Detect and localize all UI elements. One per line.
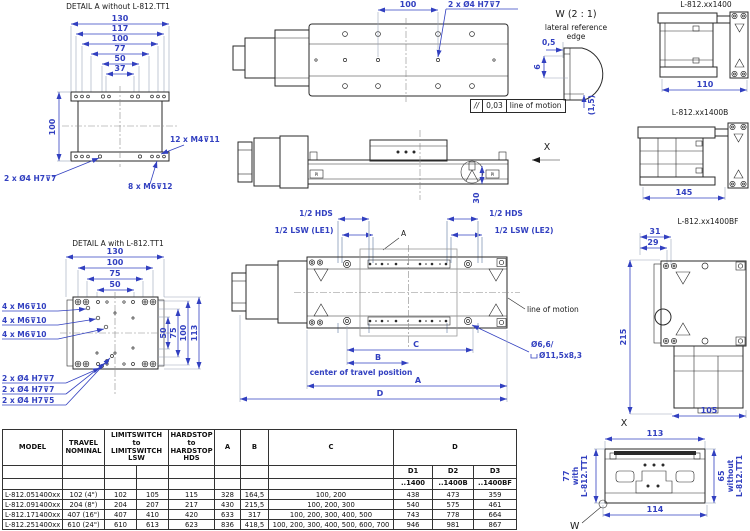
w-detail-title: W (2 : 1) (555, 9, 596, 20)
w-callout: W (570, 500, 607, 531)
cell-d2: 575 (433, 500, 474, 510)
note-2x-d4h7-top: 2 x Ø4 H7⊽7 (448, 0, 500, 9)
dim-130b: 130 (107, 247, 124, 256)
top-plan-view: 100 2 x Ø4 H7⊽7 (232, 0, 520, 98)
cell-hds: 115 (169, 490, 215, 500)
dim-215-label: 215 (619, 328, 628, 345)
table-header-row: MODEL TRAVEL NOMINAL LIMITSWITCH to LIMI… (3, 430, 517, 466)
x-left-dim-77: 77 with L-812.TT1 (562, 449, 605, 503)
bf-top-dims: 31 29 (640, 227, 671, 265)
parallelism-symbol: // (471, 100, 483, 112)
w-detail-sub2: edge (567, 32, 586, 41)
stage-side-body: PI PI (308, 130, 508, 200)
cell-travel: 610 (24") (63, 520, 105, 530)
hole-callout: 2 x Ø4 H7⊽7 (438, 0, 518, 57)
dim-75r: 75 (169, 327, 178, 339)
table-row: L-812.051400xx 102 (4") 102 105 115 328 … (3, 490, 517, 500)
table-subheader-row-2: ..1400 ..1400B ..1400BF (3, 479, 517, 490)
dim-65-note1: without (726, 459, 735, 492)
view-1400b-label: L-812.xx1400B (672, 108, 729, 117)
dim-height-100: 100 (48, 118, 57, 135)
table-subheader-row-1: D1 D2 D3 (3, 466, 517, 479)
dim-113-label: 113 (647, 429, 664, 438)
x-dim-114: 114 (603, 505, 707, 517)
cell-a: 328 (215, 490, 241, 500)
cell-hds: 217 (169, 500, 215, 510)
cell-d1: 743 (394, 510, 433, 520)
detail-a-with-tt1-view: DETAIL A with L-812.TT1 130 100 75 50 (0, 235, 232, 413)
a-callout-label: A (401, 229, 407, 238)
x-body (605, 449, 705, 503)
col-d1-header: D1 (394, 466, 433, 479)
w-detail-sub1: lateral reference (545, 23, 608, 32)
dim-100-label: 100 (400, 0, 417, 9)
w-detail-view: W (2 : 1) lateral reference edge 0,5 6 (… (518, 4, 630, 116)
cell-hds: 623 (169, 520, 215, 530)
motor-silhouette-b (638, 127, 728, 185)
mounting-plate-b (728, 123, 748, 188)
spec-table: MODEL TRAVEL NOMINAL LIMITSWITCH to LIMI… (2, 429, 517, 530)
datasheet-drawing-page: DETAIL A without L-812.TT1 130 117 100 7… (0, 0, 750, 531)
height-dimension: 100 (48, 92, 71, 161)
dim-6: 6 (533, 64, 542, 70)
col-lsw-header: LIMITSWITCH to LIMITSWITCH LSW (105, 430, 169, 466)
motor-side (238, 136, 308, 188)
dim-145-label: 145 (676, 188, 693, 197)
cell-lsw2: 207 (137, 500, 169, 510)
view-1400bf-label: L-812.xx1400BF (678, 217, 739, 226)
cell-d3: 664 (474, 510, 517, 520)
dim-a-label: A (415, 376, 422, 385)
col-b-header: B (241, 430, 269, 466)
cell-hds: 420 (169, 510, 215, 520)
view-1400: L-812.xx1400 110 (635, 0, 750, 98)
dim-50b: 50 (109, 280, 121, 289)
tolerance-value: 0,03 (483, 100, 507, 112)
dim-100r: 100 (179, 324, 188, 341)
dim-77-note2: L-812.TT1 (580, 455, 589, 497)
table-row: L-812.091400xx 204 (8") 204 207 217 430 … (3, 500, 517, 510)
dim-75b: 75 (109, 269, 121, 278)
dim-31-label: 31 (649, 227, 661, 236)
hole-note-line1: Ø6,6/ (531, 340, 554, 349)
dim-65-note2: L-812.TT1 (735, 455, 744, 497)
cell-travel: 204 (8") (63, 500, 105, 510)
detail-a-top-title: DETAIL A without L-812.TT1 (66, 2, 170, 11)
bf-upper-body (654, 261, 746, 346)
mounting-plate (730, 12, 748, 78)
note-m6-3: 4 x M6⊽10 (2, 330, 47, 339)
cell-model: L-812.251400xx (3, 520, 63, 530)
cell-b: 317 (241, 510, 269, 520)
col-travel-header: TRAVEL NOMINAL (63, 430, 105, 466)
bf-lower-motor (674, 346, 743, 413)
cell-a: 836 (215, 520, 241, 530)
tt1-body (60, 292, 172, 395)
dim-110-label: 110 (697, 80, 714, 89)
cell-a: 430 (215, 500, 241, 510)
lsw-right-label: 1/2 LSW (LE2) (495, 226, 554, 235)
hds-left-label: 1/2 HDS (299, 209, 333, 218)
cell-d1: 438 (394, 490, 433, 500)
hole-note-line2: Ø11,5x8,3 (539, 351, 582, 360)
dim-50r: 50 (159, 327, 168, 339)
side-elevation-view: PI PI 30 X (230, 122, 650, 208)
col-d3-header: D3 (474, 466, 517, 479)
dim-77-label: 77 (562, 470, 571, 481)
w-callout-label: W (570, 521, 580, 531)
stage-body (309, 18, 508, 102)
dim-145: 145 (643, 187, 725, 200)
cell-d2: 473 (433, 490, 474, 500)
cell-d2: 778 (433, 510, 474, 520)
note-12x-m4: 12 x M4⊽11 (170, 135, 220, 144)
view-1400bf: L-812.xx1400BF 31 29 215 105 (618, 215, 750, 420)
cell-d3: 461 (474, 500, 517, 510)
dim-0-5: 0,5 (542, 38, 555, 47)
main-motor (232, 261, 307, 323)
col-hds-header: HARDSTOP to HARDSTOP HDS (169, 430, 215, 466)
note-m6-2: 4 x M6⊽10 (2, 316, 47, 325)
dimension-chain: 130 117 100 77 50 37 (71, 14, 169, 92)
counterbore-callout: Ø6,6/ Ø11,5x8,3 (472, 325, 582, 360)
cell-lsw1: 407 (105, 510, 137, 520)
dim-65-label: 65 (717, 470, 726, 482)
bottom-annotations: 2 x Ø4 H7⊽7 2 x Ø4 H7⊽7 2 x Ø4 H7⊽5 (2, 358, 110, 405)
cell-d1: 540 (394, 500, 433, 510)
counterbore-detail: 30 (461, 161, 483, 204)
cell-lsw1: 102 (105, 490, 137, 500)
cell-travel: 407 (16") (63, 510, 105, 520)
edge-profile (564, 48, 603, 100)
cell-b: 215,5 (241, 500, 269, 510)
table-row: L-812.171400xx 407 (16") 407 410 420 633… (3, 510, 517, 520)
dim-77-note1: with (571, 467, 580, 485)
body-outline (62, 86, 178, 167)
dim-d-label: D (377, 389, 384, 398)
cell-b: 418,5 (241, 520, 269, 530)
view-1400-label: L-812.xx1400 (680, 0, 732, 9)
cell-model: L-812.051400xx (3, 490, 63, 500)
cell-lsw2: 410 (137, 510, 169, 520)
dim-c-label: C (413, 340, 419, 349)
dim-b-label: B (375, 353, 381, 362)
dim-37: 37 (114, 64, 125, 73)
dim-100-between-holes: 100 (378, 0, 438, 57)
x-axis-label: X (544, 142, 551, 153)
switch-dimensions: 1/2 HDS 1/2 LSW (LE1) 1/2 HDS 1/2 LSW (L… (275, 209, 554, 333)
x-section-view: X 113 114 77 with L-812.TT1 65 without L… (558, 413, 750, 531)
pi-logo-left: PI (315, 172, 319, 177)
cell-travel: 102 (4") (63, 490, 105, 500)
dim-29-label: 29 (647, 238, 659, 247)
cell-c: 100, 200, 300, 400, 500, 600, 700 (269, 520, 394, 530)
annotations: 2 x Ø4 H7⊽7 8 x M6⊽12 12 x M4⊽11 (4, 135, 220, 191)
dim-113r: 113 (190, 325, 199, 342)
dim-110: 110 (662, 79, 747, 92)
col-a-header: A (215, 430, 241, 466)
line-of-motion-callout: line of motion (508, 298, 579, 314)
dim-100: 100 (112, 34, 129, 43)
note-h7-3: 2 x Ø4 H7⊽5 (2, 396, 54, 405)
cell-model: L-812.091400xx (3, 500, 63, 510)
table-row: L-812.251400xx 610 (24") 610 613 623 836… (3, 520, 517, 530)
x-direction-arrow: X (532, 142, 560, 160)
col-model-header: MODEL (3, 430, 63, 466)
dim-130: 130 (112, 14, 129, 23)
dim-114-label: 114 (647, 505, 664, 514)
dim-1-5: (1,5) (587, 95, 596, 115)
col-c-header: C (269, 430, 394, 466)
hds-right-label: 1/2 HDS (489, 209, 523, 218)
cell-lsw1: 610 (105, 520, 137, 530)
motor-silhouette (658, 13, 730, 77)
dim-117: 117 (112, 24, 129, 33)
cell-b: 164,5 (241, 490, 269, 500)
cell-a: 633 (215, 510, 241, 520)
note-m6-1: 4 x M6⊽10 (2, 302, 47, 311)
cell-c: 100, 200, 300, 400, 500 (269, 510, 394, 520)
cell-d3: 867 (474, 520, 517, 530)
pi-logo-right: PI (491, 172, 495, 177)
lsw-left-label: 1/2 LSW (LE1) (275, 226, 334, 235)
dim-30-label: 30 (472, 192, 481, 204)
dimension-chain-right: 50 75 100 113 (158, 297, 201, 369)
note-h7-1: 2 x Ø4 H7⊽7 (2, 374, 54, 383)
cell-d3: 359 (474, 490, 517, 500)
motor-assembly (233, 30, 309, 86)
cell-d2: 981 (433, 520, 474, 530)
col-d2-header: D2 (433, 466, 474, 479)
dim-50: 50 (114, 54, 126, 63)
dim-100b: 100 (107, 258, 124, 267)
col-suffix-1400bf-header: ..1400BF (474, 479, 517, 490)
col-suffix-1400b-header: ..1400B (433, 479, 474, 490)
x-view-label: X (621, 418, 628, 429)
col-d-header: D (394, 430, 517, 466)
detail-a-without-tt1-view: DETAIL A without L-812.TT1 130 117 100 7… (0, 0, 232, 200)
dim-77: 77 (114, 44, 125, 53)
cell-model: L-812.171400xx (3, 510, 63, 520)
x-dim-113: 113 (605, 429, 705, 449)
cell-lsw1: 204 (105, 500, 137, 510)
center-of-travel-label: center of travel position (310, 368, 413, 377)
note-2x-d4h7: 2 x Ø4 H7⊽7 (4, 174, 56, 183)
cell-c: 100, 200, 300 (269, 500, 394, 510)
col-suffix-1400-header: ..1400 (394, 479, 433, 490)
cell-c: 100, 200 (269, 490, 394, 500)
cell-lsw2: 105 (137, 490, 169, 500)
main-plan-view: 1/2 HDS 1/2 LSW (LE1) 1/2 HDS 1/2 LSW (L… (228, 205, 648, 427)
cell-lsw2: 613 (137, 520, 169, 530)
cell-d1: 946 (394, 520, 433, 530)
x-right-dim-65: 65 without L-812.TT1 (705, 449, 744, 503)
dimension-chain-top: 130 100 75 50 (66, 247, 164, 297)
line-of-motion-label: line of motion (527, 305, 579, 314)
note-h7-2: 2 x Ø4 H7⊽7 (2, 385, 54, 394)
